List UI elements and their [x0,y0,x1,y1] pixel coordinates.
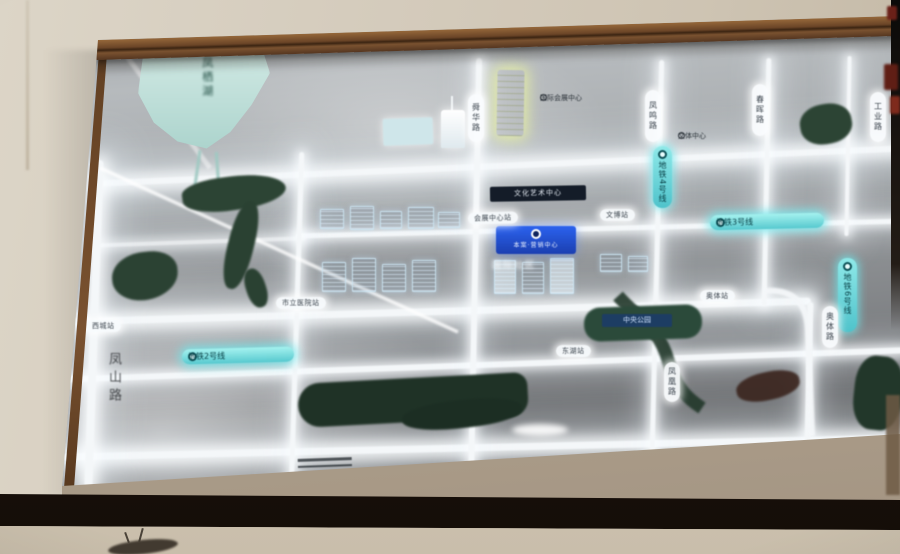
project-badge-label: 本案·营销中心 [514,240,559,249]
station-pill: 奥体站 [700,290,735,302]
wall-corner-seam [26,0,29,170]
red-mark-icon [884,64,898,90]
red-mark-icon [890,96,900,114]
building [320,209,344,229]
building [412,260,436,292]
poi-label: 文体中心 [678,132,685,139]
metro-roundel-icon [658,150,667,159]
glowing-district-label: 国际社区 [492,258,536,271]
road-name-pill: 凤鸣路 [645,90,661,142]
project-badge: 本案·营销中心 [496,226,576,254]
road-name-pill: 工业路 [870,92,886,142]
road-name-pill: 奥体路 [822,306,838,348]
metro-line6-vertical-pill: 地铁6号线 [838,258,857,332]
frame-right-wood [886,395,900,495]
park-plaque-label: 中央公园 [602,314,672,327]
building [600,254,622,272]
metro-roundel-icon [843,262,852,271]
project-logo-icon [531,229,541,239]
building [438,212,460,228]
metro-line4-vertical-pill: 地铁4号线 [653,146,672,208]
road-name-pill: 舜华路 [468,94,484,142]
road-name-pill: 凤凰路 [664,362,680,402]
highlight-building [496,70,524,136]
poi-label: 国际会展中心 [540,94,547,101]
station-pill: 会展中心站 [468,211,518,224]
station-pill: 市立医院站 [276,297,326,309]
building [322,262,346,292]
tower-spire-icon [451,96,453,111]
photo-of-backlit-map-display: 凤栖湖 本案·营销中心 [0,0,900,554]
tower-icon [441,110,465,148]
metro-line3-pill: 地铁3号线 [710,213,824,231]
station-pill: 文博站 [600,209,635,221]
building [628,256,648,272]
mountain-road-label: 凤山路 [104,352,123,406]
station-pill: 东湖站 [556,345,591,357]
building [352,258,376,292]
station-pill: 西城站 [86,320,121,332]
video-edge-strip [891,0,900,330]
road-name-pill: 春晖路 [752,84,768,136]
building [382,264,406,292]
red-mark-icon [887,6,897,20]
building-block [383,117,434,146]
dark-plaque-label: 文化艺术中心 [490,185,586,202]
glare-spot-icon [512,424,568,436]
building [380,211,402,229]
building [550,258,574,294]
building [350,206,374,230]
metro-line2-pill: 地铁2号线 [182,347,294,365]
building [408,207,434,229]
